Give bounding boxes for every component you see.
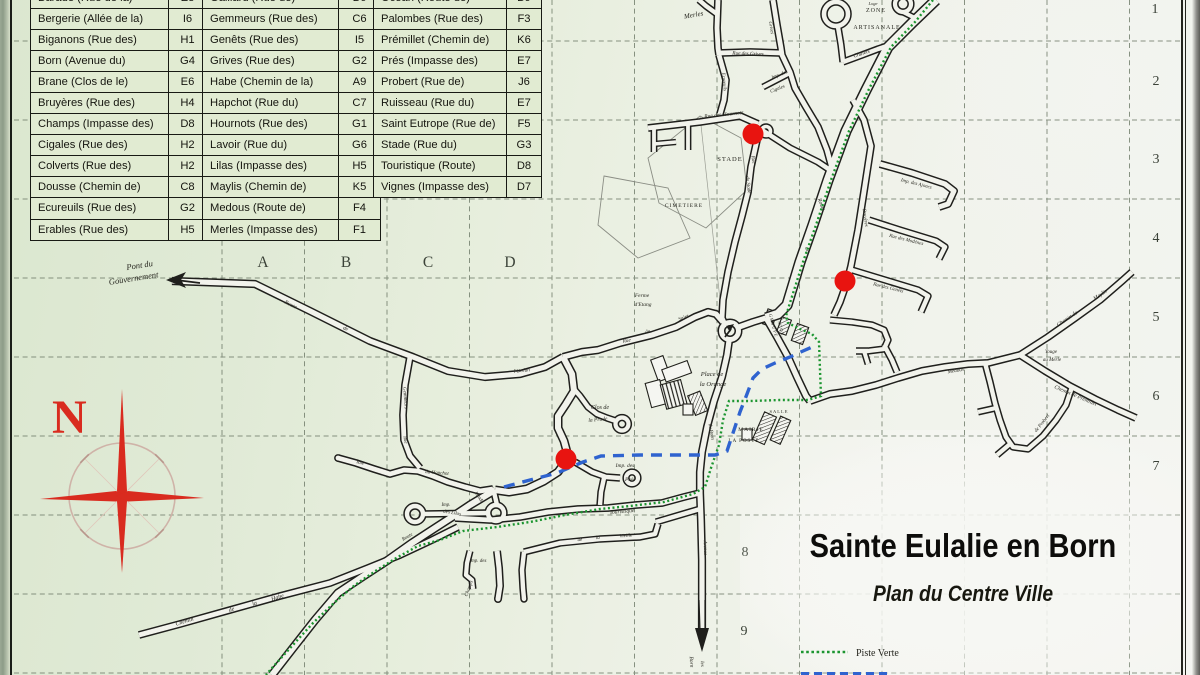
svg-text:Imp. des: Imp. des	[469, 559, 487, 564]
svg-text:C: C	[423, 254, 433, 271]
svg-text:au Merle: au Merle	[1043, 358, 1062, 363]
svg-text:N: N	[52, 391, 87, 444]
svg-text:Youge: Youge	[1045, 350, 1058, 355]
svg-text:Merles: Merles	[682, 9, 704, 20]
svg-text:Touristique: Touristique	[609, 508, 635, 516]
svg-text:Vieille: Vieille	[619, 534, 633, 540]
svg-text:1: 1	[1152, 2, 1159, 17]
svg-text:B: B	[341, 254, 351, 271]
svg-text:MAIRIE: MAIRIE	[738, 427, 764, 433]
svg-text:A: A	[257, 254, 269, 271]
svg-text:ARTISANALE: ARTISANALE	[853, 25, 900, 31]
svg-text:D: D	[504, 254, 515, 271]
svg-text:Grives: Grives	[767, 21, 774, 35]
svg-text:la Prade: la Prade	[588, 416, 608, 424]
svg-text:Gouvernement: Gouvernement	[108, 269, 160, 287]
svg-text:Avenue: Avenue	[702, 540, 708, 556]
svg-text:9: 9	[741, 624, 748, 639]
svg-text:6: 6	[1153, 389, 1160, 404]
svg-text:Imp. des: Imp. des	[615, 463, 635, 469]
svg-text:la Orange: la Orange	[700, 381, 727, 388]
svg-text:Loge: Loge	[868, 1, 878, 6]
svg-text:SALLE: SALLE	[770, 409, 789, 414]
svg-text:5: 5	[1153, 310, 1160, 325]
svg-text:Rue des Grives: Rue des Grives	[731, 50, 764, 57]
svg-text:CIMETIERE: CIMETIERE	[665, 203, 703, 209]
svg-text:STADE: STADE	[717, 156, 742, 163]
svg-text:3: 3	[1153, 152, 1160, 167]
svg-text:7: 7	[1153, 459, 1160, 474]
svg-text:Born: Born	[688, 656, 695, 668]
svg-text:les: les	[699, 661, 704, 667]
svg-text:Ecureuils: Ecureuils	[720, 72, 727, 92]
svg-text:Place de: Place de	[700, 371, 724, 378]
svg-text:4: 4	[1153, 231, 1160, 246]
svg-text:2: 2	[1153, 74, 1160, 89]
svg-text:Piste Verte: Piste Verte	[856, 648, 899, 659]
svg-text:Prés: Prés	[624, 477, 635, 483]
svg-text:Clos de: Clos de	[591, 405, 610, 411]
svg-text:Ferme: Ferme	[634, 293, 650, 299]
svg-text:LA POSTE: LA POSTE	[729, 439, 760, 444]
svg-text:Imp.: Imp.	[440, 503, 450, 508]
svg-text:ZONE: ZONE	[866, 8, 886, 14]
svg-text:d'Etang: d'Etang	[634, 302, 651, 308]
